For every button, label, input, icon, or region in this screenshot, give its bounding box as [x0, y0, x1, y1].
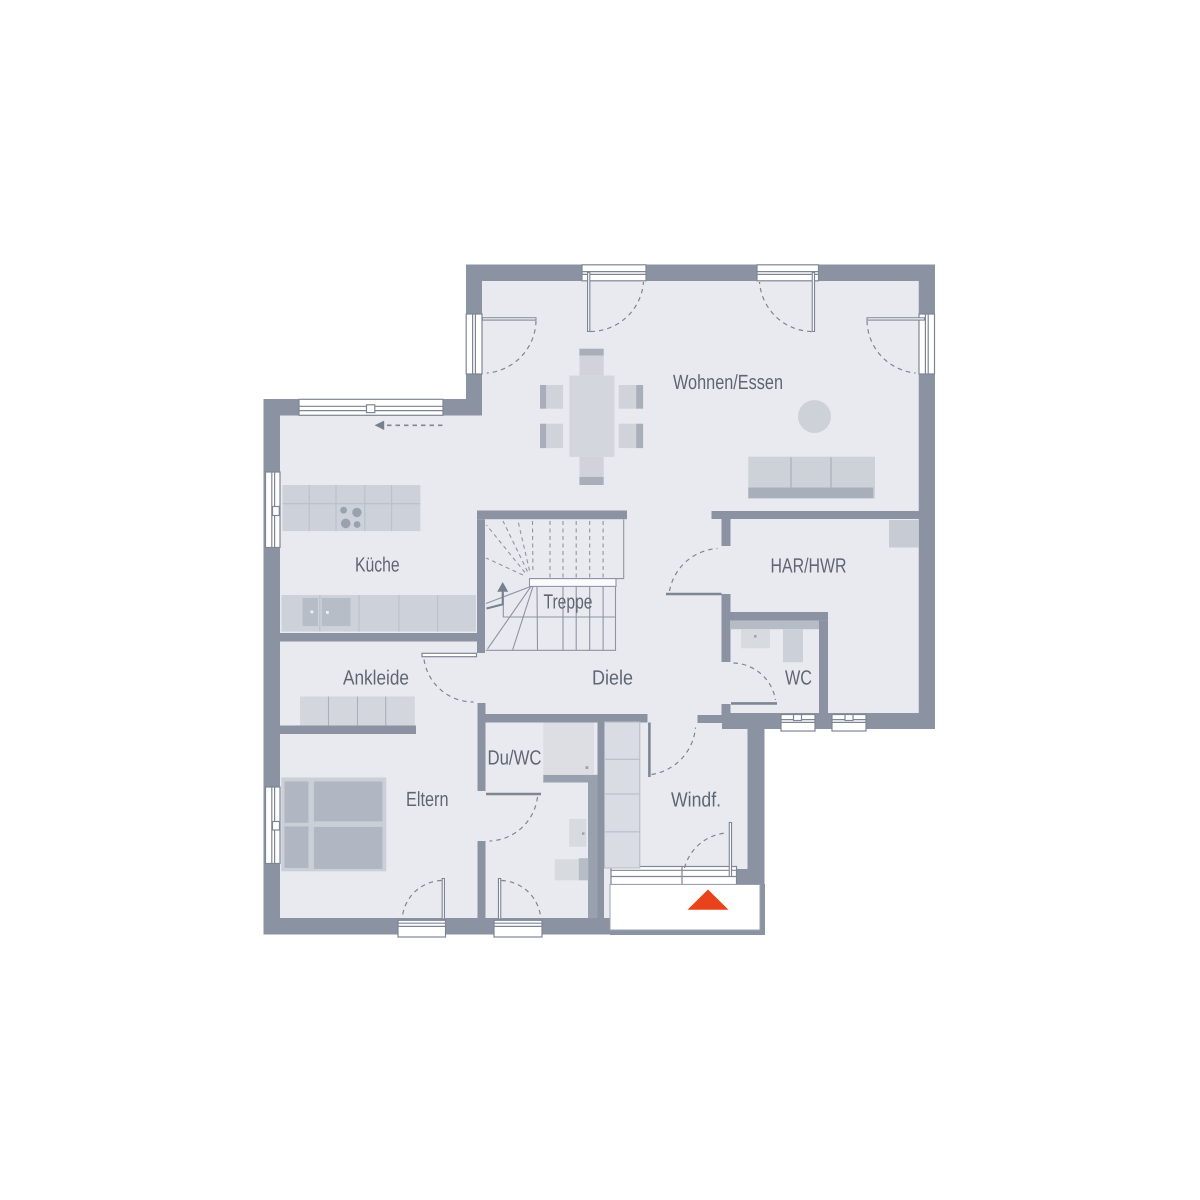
svg-text:Diele: Diele — [592, 667, 633, 690]
svg-text:Wohnen/Essen: Wohnen/Essen — [673, 371, 783, 394]
svg-text:Du/WC: Du/WC — [488, 747, 542, 770]
svg-text:Ankleide: Ankleide — [343, 667, 409, 690]
svg-text:HAR/HWR: HAR/HWR — [771, 554, 847, 577]
svg-text:Treppe: Treppe — [544, 590, 593, 613]
svg-text:Eltern: Eltern — [406, 788, 449, 811]
svg-text:Windf.: Windf. — [671, 789, 721, 812]
svg-text:WC: WC — [785, 667, 812, 690]
svg-text:Küche: Küche — [355, 554, 400, 577]
